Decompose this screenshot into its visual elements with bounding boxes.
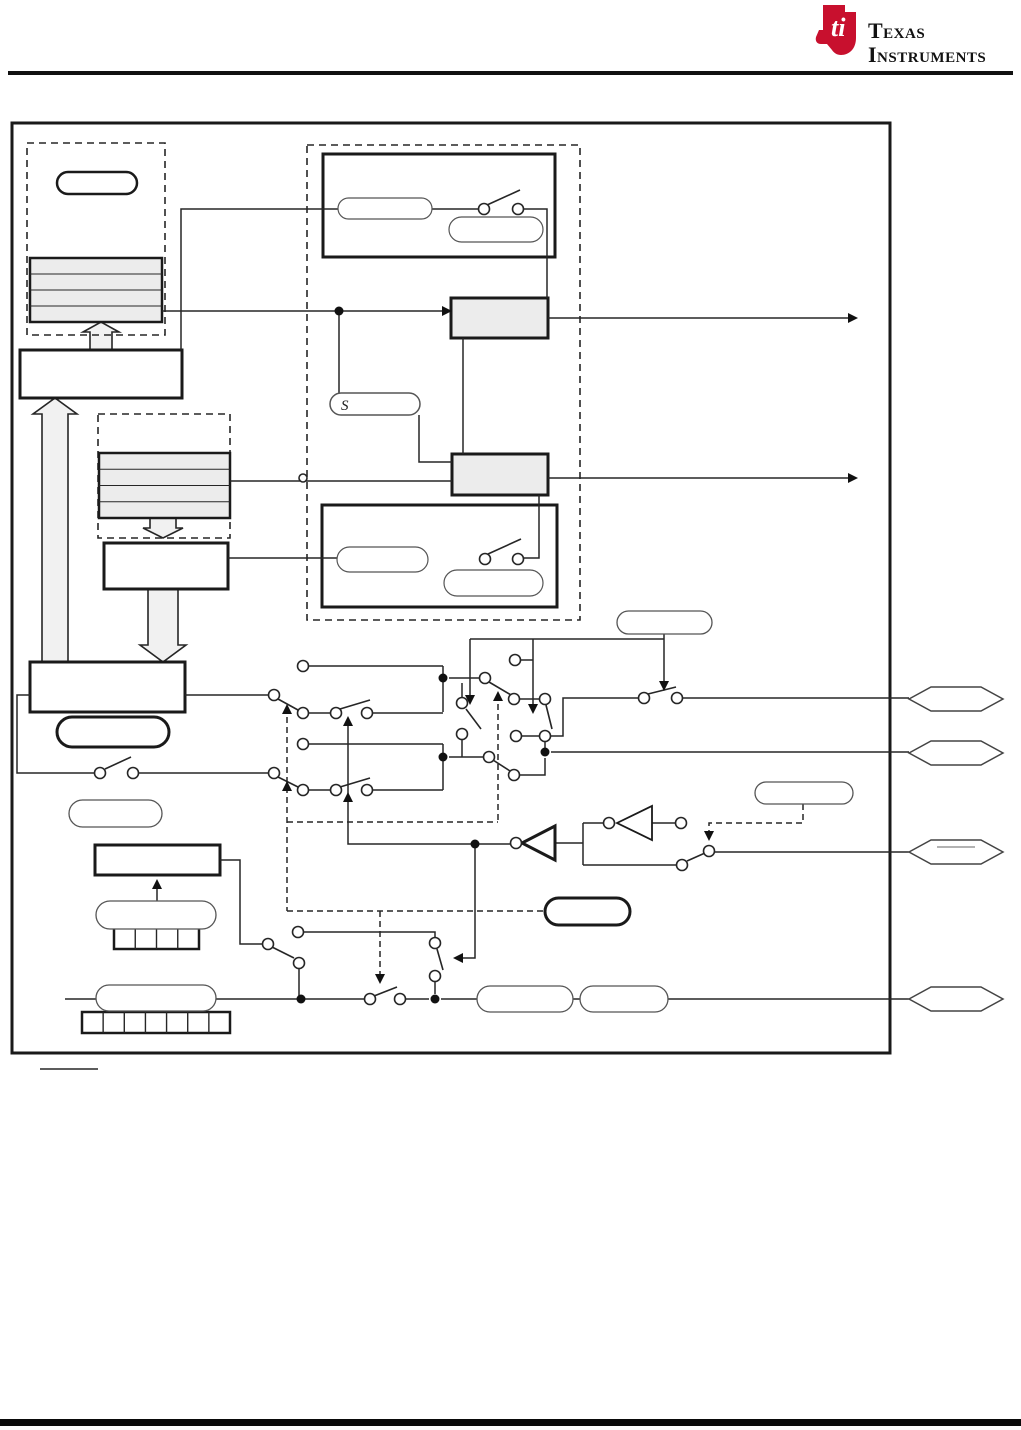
pill-top-left bbox=[57, 172, 137, 194]
terminal-circle bbox=[509, 770, 520, 781]
pill-module-bot-b bbox=[444, 570, 543, 596]
terminal-circle bbox=[480, 554, 491, 565]
arrowhead-down bbox=[375, 974, 385, 984]
terminal-circle bbox=[639, 693, 650, 704]
arrowhead-up bbox=[343, 792, 353, 802]
pill-bitname-small bbox=[96, 901, 216, 929]
block-arrow-down-large bbox=[140, 589, 186, 662]
terminal-circle bbox=[263, 939, 274, 950]
terminal-circle bbox=[672, 693, 683, 704]
switch-slash bbox=[648, 687, 676, 694]
terminal-circle bbox=[513, 204, 524, 215]
wire bbox=[419, 415, 452, 462]
terminal-circle bbox=[540, 694, 551, 705]
terminal-circle bbox=[509, 694, 520, 705]
pin-3 bbox=[909, 840, 1003, 864]
terminal-circle bbox=[269, 768, 280, 779]
pill-ctrl-bold bbox=[545, 898, 630, 925]
box-left-1 bbox=[20, 350, 182, 398]
port-schematic-diagram: S bbox=[0, 0, 1021, 1430]
switch-slash bbox=[687, 853, 705, 861]
junction-dot bbox=[439, 753, 448, 762]
arrowhead-up bbox=[493, 691, 503, 701]
arrowhead-left bbox=[453, 953, 463, 963]
wire bbox=[181, 209, 338, 350]
wire bbox=[551, 698, 638, 736]
pill-ctrl-top-right bbox=[617, 611, 712, 634]
pill-module-bot-a bbox=[337, 547, 428, 572]
terminal-circle bbox=[128, 768, 139, 779]
terminal-circle bbox=[479, 204, 490, 215]
pill-left-bold bbox=[57, 717, 169, 747]
pill-bitname-large bbox=[96, 985, 216, 1011]
terminal-circle bbox=[677, 860, 688, 871]
ctrl-dash bbox=[709, 804, 803, 839]
terminal-circle bbox=[540, 731, 551, 742]
terminal-circle bbox=[365, 994, 376, 1005]
pin-1 bbox=[909, 687, 1003, 711]
switch-slash bbox=[374, 987, 397, 996]
switch-slash bbox=[489, 682, 511, 695]
block-arrow-up-small bbox=[83, 322, 119, 350]
pin-2 bbox=[909, 741, 1003, 765]
terminal-circle bbox=[298, 739, 309, 750]
terminal-circle bbox=[298, 708, 309, 719]
terminal-circle bbox=[269, 690, 280, 701]
block-arrow-up-large bbox=[33, 398, 77, 662]
arrowhead-down bbox=[704, 831, 714, 841]
wire bbox=[220, 860, 262, 944]
inverter-2 bbox=[617, 806, 652, 840]
wire bbox=[348, 719, 510, 844]
box-left-4 bbox=[95, 845, 220, 875]
terminal-circle bbox=[299, 474, 307, 482]
switch-slash bbox=[272, 947, 294, 958]
pill-inline-b bbox=[580, 986, 668, 1012]
junction-dot bbox=[471, 840, 480, 849]
switch-slash bbox=[546, 705, 552, 729]
pin-4 bbox=[909, 987, 1003, 1011]
junction-dot bbox=[541, 748, 550, 757]
arrowhead-up bbox=[152, 879, 162, 889]
terminal-circle bbox=[430, 971, 441, 982]
datasheet-page: ti Texas Instruments S bbox=[0, 0, 1021, 1430]
terminal-circle bbox=[298, 785, 309, 796]
terminal-circle bbox=[430, 938, 441, 949]
junction-dot bbox=[297, 995, 306, 1004]
terminal-circle bbox=[457, 729, 468, 740]
junction-dot bbox=[439, 674, 448, 683]
terminal-circle bbox=[604, 818, 615, 829]
terminal-circle bbox=[510, 655, 521, 666]
switch-slash bbox=[105, 757, 131, 769]
wire bbox=[520, 758, 545, 775]
junction-dot bbox=[431, 995, 440, 1004]
terminal-circle bbox=[676, 818, 687, 829]
terminal-circle bbox=[480, 673, 491, 684]
pill-module-top-a bbox=[338, 198, 432, 219]
pill-inline-a bbox=[477, 986, 573, 1012]
arrowhead-right bbox=[848, 473, 858, 483]
terminal-circle bbox=[95, 768, 106, 779]
terminal-circle bbox=[293, 927, 304, 938]
terminal-circle bbox=[331, 785, 342, 796]
inverter-1 bbox=[522, 826, 555, 860]
box-left-2 bbox=[104, 543, 228, 589]
bitfield-large bbox=[82, 1012, 230, 1033]
register-box-bottom bbox=[452, 454, 548, 495]
label-s: S bbox=[341, 398, 349, 414]
terminal-circle bbox=[513, 554, 524, 565]
terminal-circle bbox=[331, 708, 342, 719]
pill-ctrl-output bbox=[755, 782, 853, 804]
terminal-circle bbox=[511, 838, 522, 849]
switch-slash bbox=[466, 709, 481, 729]
terminal-circle bbox=[395, 994, 406, 1005]
arrowhead-up bbox=[343, 716, 353, 726]
register-box-top bbox=[451, 298, 548, 338]
terminal-circle bbox=[294, 958, 305, 969]
switch-slash bbox=[493, 760, 510, 771]
terminal-circle bbox=[362, 708, 373, 719]
terminal-circle bbox=[484, 752, 495, 763]
junction-dot bbox=[335, 307, 344, 316]
terminal-circle bbox=[457, 698, 468, 709]
box-left-3 bbox=[30, 662, 185, 712]
switch-slash bbox=[437, 949, 443, 970]
pill-left-thin bbox=[69, 800, 162, 827]
block-arrow-down-small bbox=[143, 518, 183, 538]
terminal-circle bbox=[511, 731, 522, 742]
pill-module-top-b bbox=[449, 217, 543, 242]
terminal-circle bbox=[704, 846, 715, 857]
wire bbox=[304, 932, 435, 937]
arrowhead-down bbox=[528, 704, 538, 714]
wire bbox=[458, 844, 475, 958]
terminal-circle bbox=[298, 661, 309, 672]
footer-rule bbox=[0, 1419, 1021, 1426]
arrowhead-right bbox=[848, 313, 858, 323]
terminal-circle bbox=[362, 785, 373, 796]
